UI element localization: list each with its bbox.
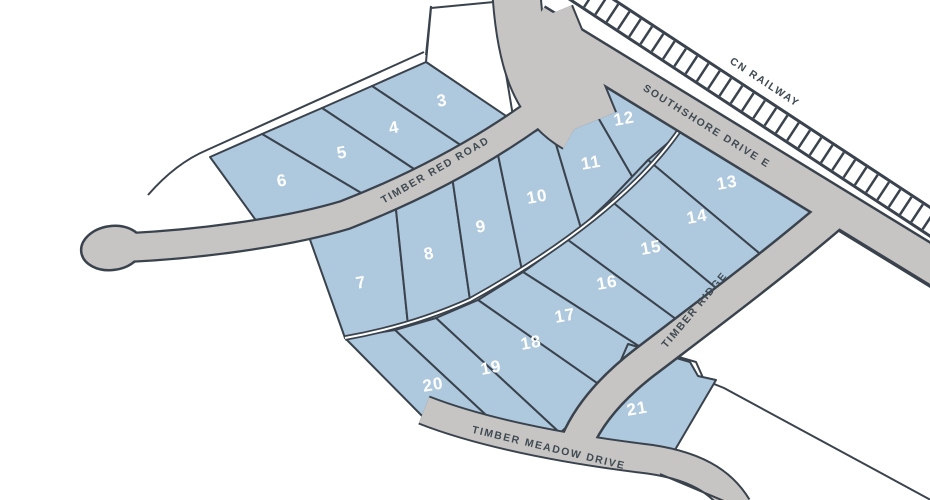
lot-17-label: 17 bbox=[553, 304, 577, 326]
lot-20-label: 20 bbox=[421, 373, 445, 395]
lot-21-label: 21 bbox=[625, 397, 649, 419]
plat-map-stage: CN RAILWAY SOUTHSHORE DRIVE E TIMBER RED… bbox=[0, 0, 930, 500]
lot-16-label: 16 bbox=[595, 271, 619, 293]
lot-19-label: 19 bbox=[479, 356, 503, 378]
plat-map-svg: CN RAILWAY SOUTHSHORE DRIVE E TIMBER RED… bbox=[0, 0, 930, 500]
lot-14-label: 14 bbox=[685, 205, 709, 227]
lot-11-label: 11 bbox=[580, 151, 603, 173]
lot-10-label: 10 bbox=[525, 185, 549, 207]
lot-18-label: 18 bbox=[519, 331, 543, 353]
lot-12-label: 12 bbox=[612, 107, 636, 129]
lot-13-label: 13 bbox=[715, 171, 739, 193]
lot-15-label: 15 bbox=[639, 236, 663, 258]
